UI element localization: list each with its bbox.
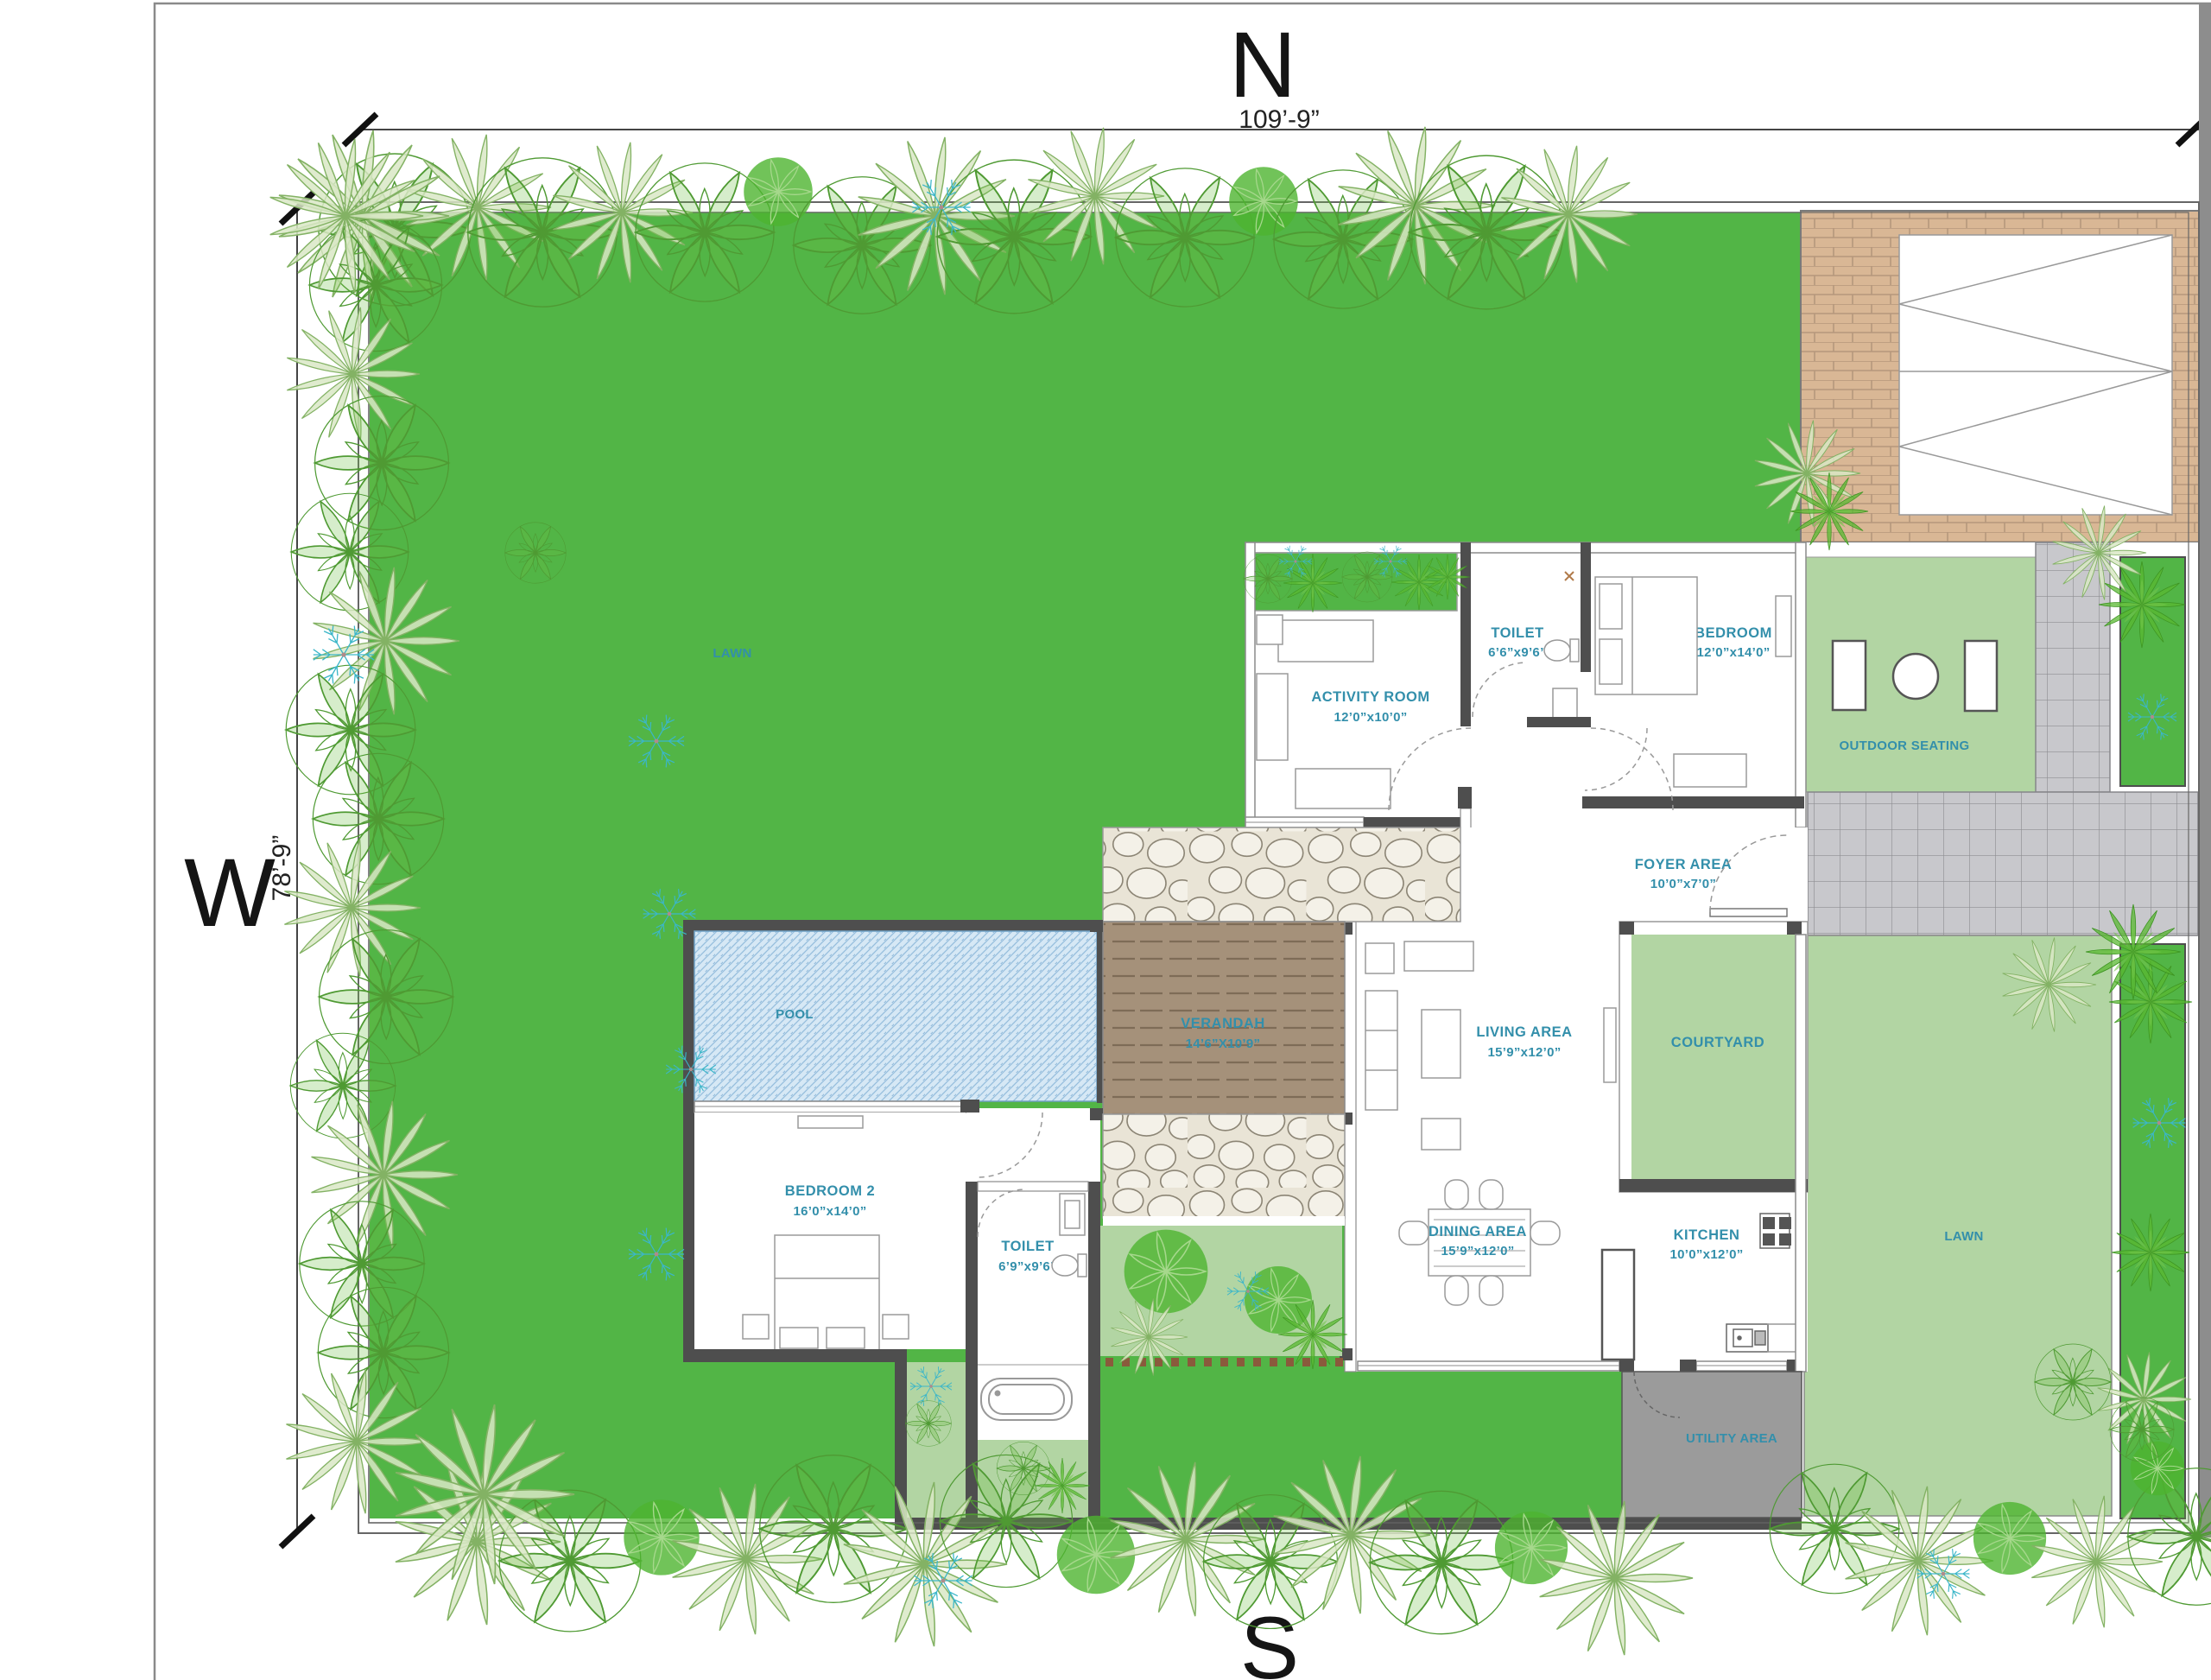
svg-text:12’0”x10’0”: 12’0”x10’0” [1334,710,1407,725]
svg-text:6’6”x9’6”: 6’6”x9’6” [1488,645,1547,660]
svg-text:DINING AREA: DINING AREA [1429,1224,1527,1239]
svg-text:10’0”x7’0”: 10’0”x7’0” [1650,877,1716,891]
svg-text:14’6”X10’9”: 14’6”X10’9” [1186,1037,1261,1051]
svg-text:W: W [184,839,276,947]
svg-text:ACTIVITY ROOM: ACTIVITY ROOM [1311,689,1429,705]
svg-text:LAWN: LAWN [713,646,751,661]
svg-text:POOL: POOL [776,1007,814,1022]
svg-text:COURTYARD: COURTYARD [1671,1035,1764,1050]
svg-text:15’9”x12’0”: 15’9”x12’0” [1487,1045,1561,1060]
svg-text:VERANDAH: VERANDAH [1181,1016,1265,1031]
svg-text:15’9”x12’0”: 15’9”x12’0” [1441,1244,1514,1258]
svg-text:10’0”x12’0”: 10’0”x12’0” [1669,1247,1743,1262]
svg-text:N: N [1229,12,1296,117]
svg-text:OUTDOOR SEATING: OUTDOOR SEATING [1840,739,1970,753]
svg-text:TOILET: TOILET [1001,1239,1054,1254]
svg-text:LIVING AREA: LIVING AREA [1476,1024,1572,1040]
svg-text:UTILITY AREA: UTILITY AREA [1686,1431,1777,1446]
svg-text:12’0”x14’0”: 12’0”x14’0” [1696,645,1770,660]
svg-text:FOYER AREA: FOYER AREA [1635,857,1733,872]
svg-text:BEDROOM 2: BEDROOM 2 [785,1183,875,1199]
svg-text:BEDROOM: BEDROOM [1695,625,1772,641]
svg-text:S: S [1240,1599,1299,1680]
svg-text:LAWN: LAWN [1944,1229,1983,1244]
svg-text:KITCHEN: KITCHEN [1674,1227,1740,1243]
svg-text:16’0”x14’0”: 16’0”x14’0” [793,1204,866,1219]
svg-text:6’9”x9’6”: 6’9”x9’6” [998,1259,1057,1274]
svg-text:TOILET: TOILET [1491,625,1543,641]
